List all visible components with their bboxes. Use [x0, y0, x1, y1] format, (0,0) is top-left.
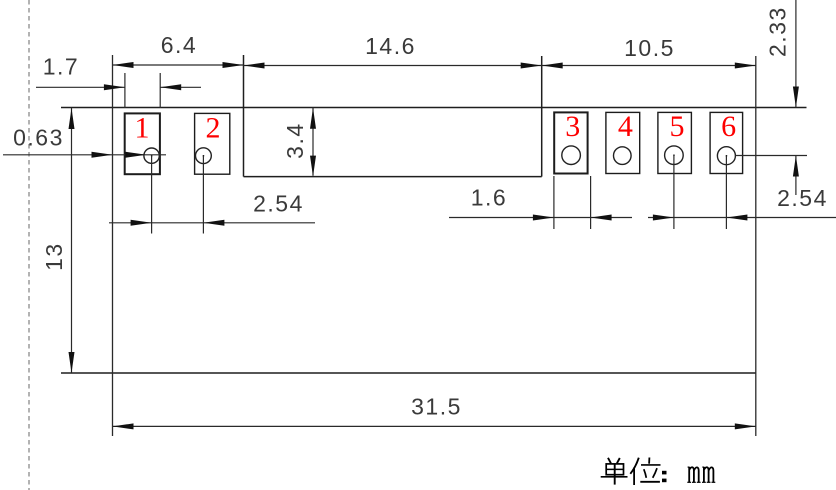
svg-text:3: 3 — [565, 110, 580, 143]
svg-text:5: 5 — [670, 110, 685, 143]
svg-text:14.6: 14.6 — [365, 33, 416, 59]
svg-text:1.6: 1.6 — [471, 185, 507, 211]
svg-text:1.7: 1.7 — [43, 54, 79, 80]
svg-text:2.33: 2.33 — [764, 6, 790, 57]
svg-text:1: 1 — [135, 111, 150, 144]
svg-text:2: 2 — [206, 111, 221, 144]
svg-text:6.4: 6.4 — [161, 32, 197, 58]
svg-text:0.63: 0.63 — [13, 125, 64, 151]
svg-text:6: 6 — [721, 110, 736, 143]
svg-text:13: 13 — [41, 242, 67, 271]
svg-text:2.54: 2.54 — [253, 191, 304, 217]
svg-text:3.4: 3.4 — [282, 122, 308, 158]
svg-text:2.54: 2.54 — [777, 185, 828, 211]
svg-text:10.5: 10.5 — [624, 35, 675, 61]
svg-text:4: 4 — [618, 110, 633, 143]
svg-text:31.5: 31.5 — [411, 394, 462, 420]
